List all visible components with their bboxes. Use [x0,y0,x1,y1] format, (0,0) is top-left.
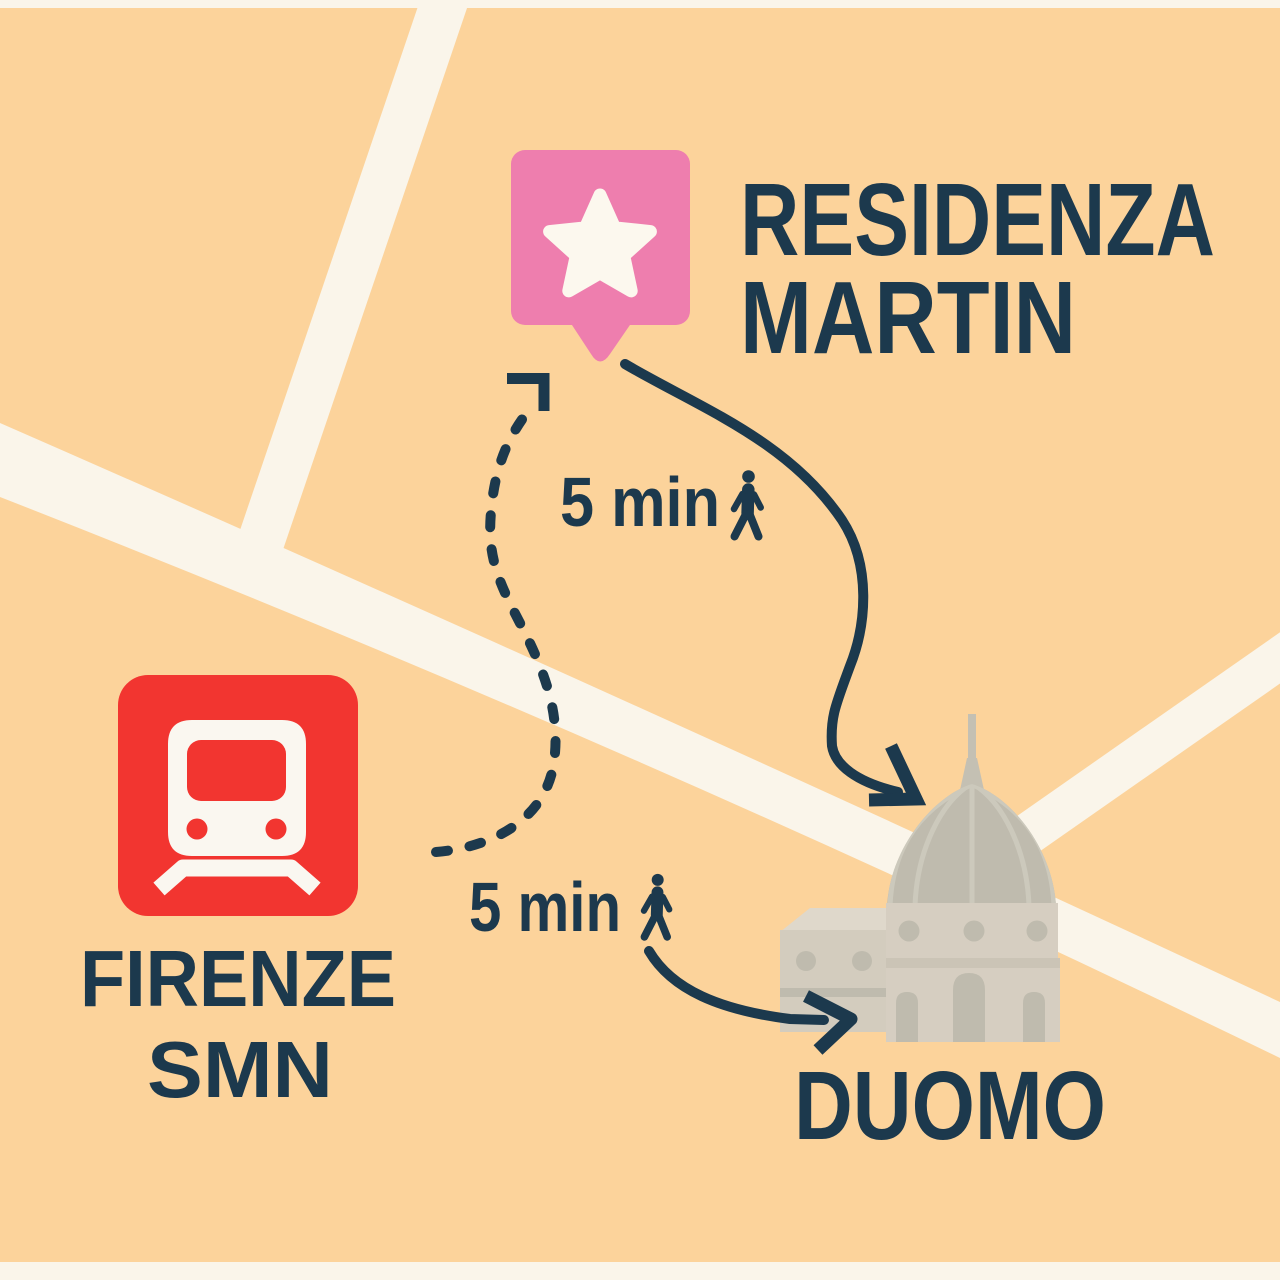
svg-text:DUOMO: DUOMO [794,1051,1106,1160]
svg-text:5 min: 5 min [469,868,621,946]
svg-text:5 min: 5 min [560,463,720,541]
svg-text:MARTIN: MARTIN [740,260,1076,375]
svg-text:SMN: SMN [147,1025,333,1114]
svg-text:FIRENZE: FIRENZE [80,934,396,1023]
